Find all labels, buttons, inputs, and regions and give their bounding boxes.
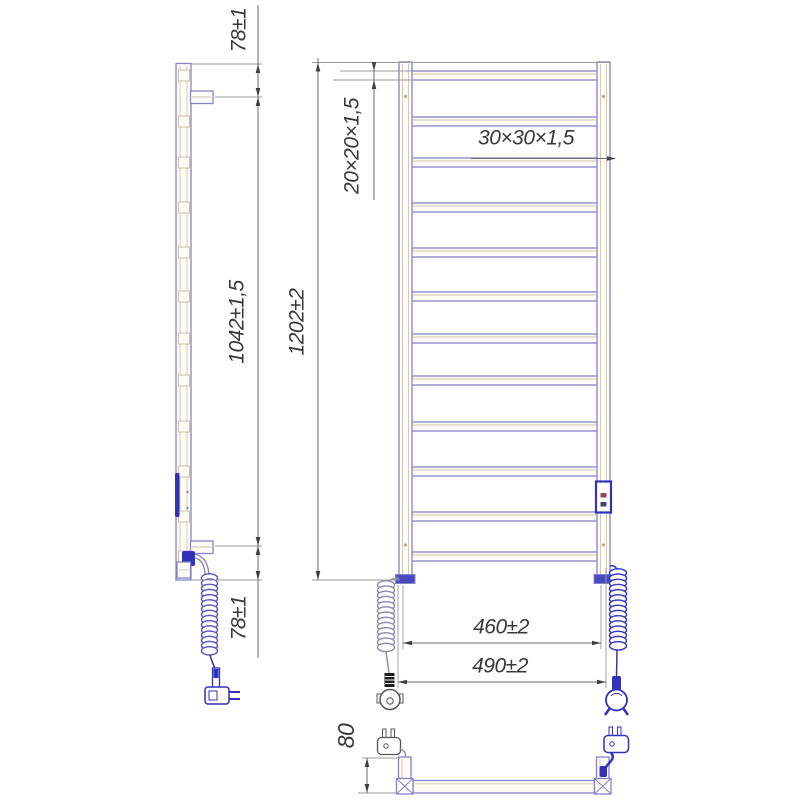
dim-rung-tube-section: 20×20×1,5	[341, 97, 364, 195]
mount-screw	[404, 95, 407, 98]
rung-stub	[179, 375, 190, 386]
front-right-cable	[617, 650, 618, 677]
dim-side-bottom-offset: 78±1	[228, 596, 251, 641]
bottom-view	[378, 727, 629, 794]
towel-rail-technical-drawing: 78±1 1042±1,5 1202±2 20×20×1,5 30×30×1,5…	[0, 0, 800, 800]
arrowhead	[592, 641, 601, 646]
rung-stub	[179, 466, 190, 477]
rung	[412, 248, 598, 257]
plan-left-post	[399, 757, 412, 780]
mount-screw	[602, 95, 605, 98]
front-right-plug	[606, 690, 627, 711]
rung	[412, 71, 598, 80]
front-left-plug	[380, 690, 400, 710]
rung	[412, 292, 598, 301]
rung	[412, 334, 598, 343]
drawing-canvas: 78±1 1042±1,5 1202±2 20×20×1,5 30×30×1,5…	[0, 0, 800, 800]
side-cable-coil	[202, 574, 218, 655]
plug-prong	[623, 708, 628, 715]
front-left-cable	[386, 652, 389, 673]
rung	[412, 467, 598, 476]
coil-loop	[610, 642, 627, 650]
dim-overall-width: 490±2	[472, 655, 529, 678]
arrowhead	[597, 680, 606, 685]
coil-loop	[202, 647, 218, 655]
arrowhead	[403, 641, 412, 646]
rung	[412, 376, 598, 385]
plan-rail	[413, 781, 595, 794]
arrowhead	[607, 156, 616, 161]
rung-stub	[179, 333, 190, 344]
arrowhead	[256, 571, 261, 580]
coil-loop	[378, 643, 395, 651]
rung-stub	[179, 421, 190, 432]
rung	[412, 422, 598, 431]
arrowhead	[256, 546, 261, 555]
rung	[412, 117, 598, 126]
plug-prong	[605, 708, 610, 715]
left-post	[399, 62, 412, 578]
dim-side-bracket-span: 1042±1,5	[226, 279, 249, 363]
plan-left-plug	[378, 738, 401, 755]
arrowhead	[256, 97, 261, 106]
dim-rail-width-centers: 460±2	[473, 616, 530, 639]
controller-side-strip	[175, 473, 180, 517]
rung	[412, 158, 598, 167]
left-foot	[396, 575, 416, 584]
arrowhead	[365, 784, 370, 793]
plan-right-plug	[604, 736, 629, 753]
arrowhead	[372, 62, 377, 71]
front-left-cable-coil	[378, 581, 395, 652]
controller-switch	[601, 502, 607, 507]
rung-stub	[179, 291, 190, 302]
front-right-cable-coil	[610, 569, 627, 650]
rung	[412, 512, 598, 521]
arrowhead	[256, 88, 261, 97]
mount-screw	[404, 543, 407, 546]
arrowhead	[316, 63, 321, 72]
rung-stub	[179, 157, 190, 168]
arrowhead	[398, 680, 407, 685]
rung-stub	[179, 70, 190, 81]
dim-wall-depth: 80	[333, 723, 359, 748]
arrowhead	[256, 537, 261, 546]
controller-indicator	[601, 493, 607, 498]
dim-overall-height: 1202±2	[286, 288, 309, 356]
arrowhead	[256, 64, 261, 73]
rung-stub	[179, 202, 190, 213]
mount-screw	[602, 543, 605, 546]
dim-post-tube-section: 30×30×1,5	[478, 127, 575, 150]
rung-stub	[179, 116, 190, 127]
arrowhead	[316, 571, 321, 580]
rung	[412, 203, 598, 212]
rung-stub	[179, 511, 190, 522]
dim-side-top-offset: 78±1	[228, 8, 251, 53]
rung	[412, 552, 598, 561]
arrowhead	[372, 80, 377, 89]
rung-stub	[179, 247, 190, 258]
arrowhead	[365, 758, 370, 767]
